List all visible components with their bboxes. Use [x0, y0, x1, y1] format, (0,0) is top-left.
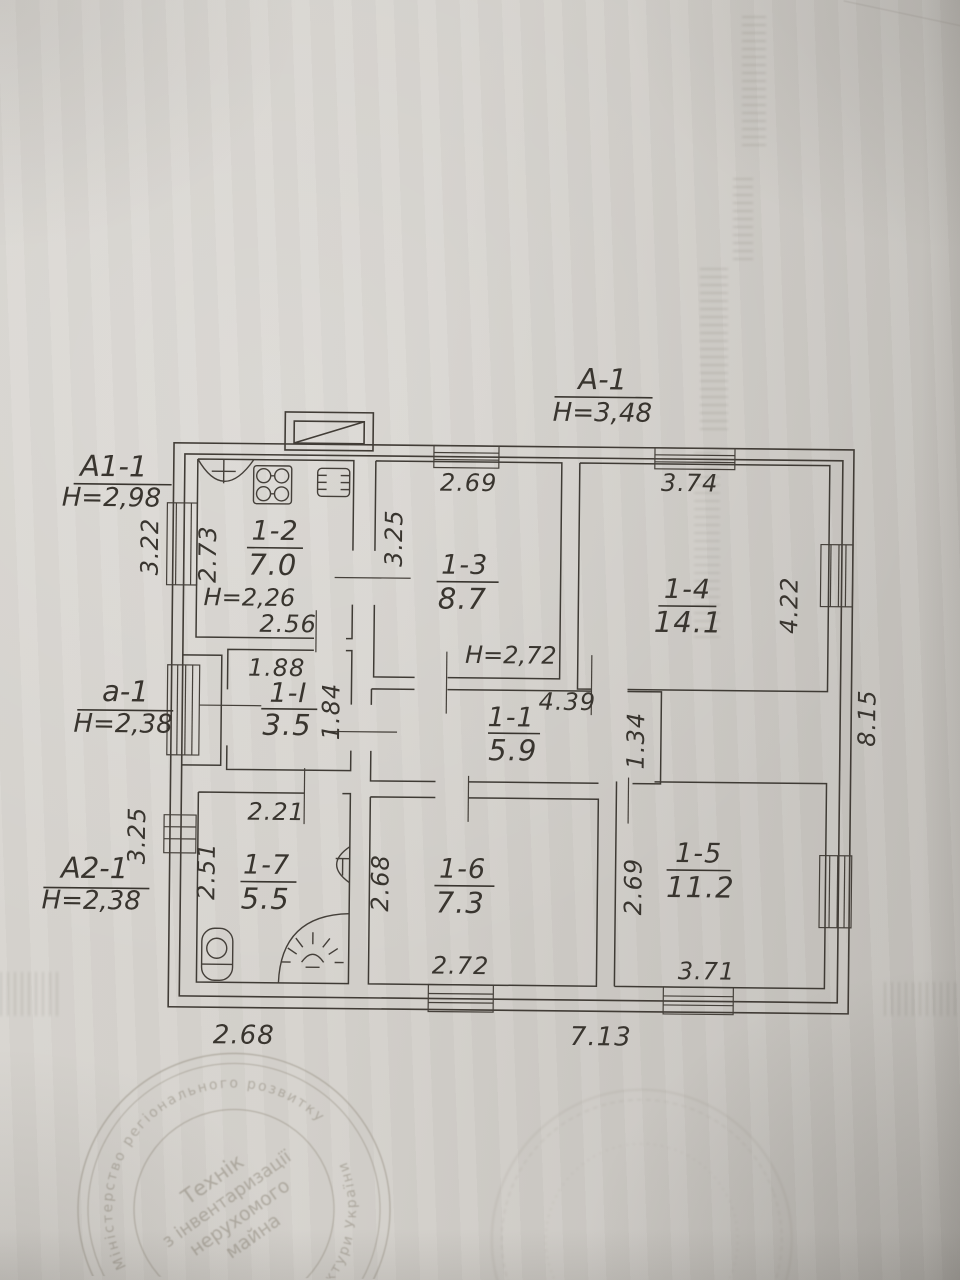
window: [819, 856, 852, 928]
room-id-label: 1-І: [269, 678, 307, 709]
room-id-label: 1-2: [251, 516, 298, 547]
dim-label: 2.21: [247, 798, 305, 827]
room-id-label: 1-6: [439, 854, 486, 885]
room-height-note: Н=2,26: [203, 583, 295, 612]
room-area-label: 11.2: [666, 870, 735, 905]
dim-label: 3.25: [123, 807, 152, 865]
room-id-label: 1-7: [243, 850, 290, 881]
porch: [182, 655, 222, 765]
room-id-label: 1-3: [441, 550, 488, 581]
dim-label: 2.68: [213, 1020, 275, 1051]
room-1-5-labels: 1-5 11.2 3.71 2.69: [618, 837, 736, 985]
room-area-label: 14.1: [654, 605, 723, 640]
dim-label: 2.69: [440, 469, 498, 498]
section-label: А2-1: [59, 851, 129, 886]
section-label-A1-1: А1-1 Н=2,98: [62, 449, 172, 514]
dim-label: 2.56: [259, 610, 317, 639]
water-heater-icon: [278, 913, 349, 984]
scanned-floor-plan-photo: А-1 Н=3,48 А1-1 Н=2,98 а-1 Н=2,38 А2-1 Н…: [0, 0, 960, 1280]
section-height: Н=2,38: [41, 885, 141, 916]
room-height-note: Н=2,72: [465, 641, 557, 670]
window: [820, 545, 853, 607]
dim-label: 8.15: [853, 689, 882, 747]
dim-label: 3.71: [678, 957, 736, 986]
dim-label: 1.88: [248, 654, 306, 683]
room-1-2-labels: 1-2 7.0 Н=2,26 2.56 2.73: [193, 515, 318, 638]
room-area-label: 5.5: [241, 882, 290, 917]
floor-plan-drawing: А-1 Н=3,48 А1-1 Н=2,98 а-1 Н=2,38 А2-1 Н…: [0, 0, 960, 1280]
room-1-3-labels: 1-3 8.7 2.69 3.25: [379, 468, 500, 616]
room-1-6-labels: 1-6 7.3 2.72 2.68: [365, 853, 494, 980]
room-id-label: 1-1: [487, 702, 534, 733]
dim-label: 2.68: [366, 854, 395, 912]
room-id-label: 1-5: [675, 838, 722, 869]
sink-icon: [198, 459, 254, 484]
dim-label: 2.73: [194, 525, 223, 583]
room-1-I-labels: 1-І 3.5 1.88 1.84: [247, 654, 346, 743]
dim-label: 3.25: [380, 509, 409, 567]
dim-label: 1.84: [317, 683, 346, 741]
dim-label: 7.13: [570, 1022, 632, 1053]
title-height: Н=3,48: [553, 398, 653, 429]
oven-icon: [317, 468, 349, 496]
dim-label: 2.69: [619, 858, 648, 916]
room-area-label: 3.5: [262, 708, 311, 743]
dim-label: 4.22: [775, 576, 804, 634]
dim-label: 4.39: [538, 688, 596, 717]
stove-icon: [253, 466, 291, 504]
room-id-label: 1-4: [664, 574, 711, 605]
room-area-label: 7.0: [248, 548, 297, 583]
room-1-7-labels: 1-7 5.5 2.21 2.51: [192, 797, 305, 916]
dim-label: 2.51: [192, 842, 221, 900]
dim-label: 3.22: [136, 518, 165, 576]
section-height: Н=2,98: [62, 483, 162, 514]
room-area-label: 5.9: [488, 733, 537, 768]
section-label: А1-1: [78, 449, 148, 484]
meter-icon: [335, 847, 349, 883]
section-height: Н=2,38: [73, 709, 173, 740]
window: [164, 815, 196, 853]
section-label-a-1: а-1 Н=2,38: [73, 674, 173, 740]
dim-label: 1.34: [622, 712, 651, 770]
room-1-4-labels: 1-4 14.1 3.74 4.22: [654, 469, 805, 641]
dim-label: 3.74: [661, 469, 719, 498]
dim-label: 2.72: [432, 952, 490, 981]
toilet-icon: [201, 928, 233, 980]
title-label: А-1: [576, 362, 627, 397]
faint-stamp: [450, 1048, 833, 1280]
section-label: а-1: [102, 674, 149, 708]
room-area-label: 8.7: [438, 582, 487, 617]
drawing-title: А-1 Н=3,48: [553, 362, 653, 429]
room-1-1-hall-labels: 1-1 5.9 Н=2,72 4.39 1.34: [464, 641, 651, 770]
room-area-label: 7.3: [436, 886, 485, 921]
